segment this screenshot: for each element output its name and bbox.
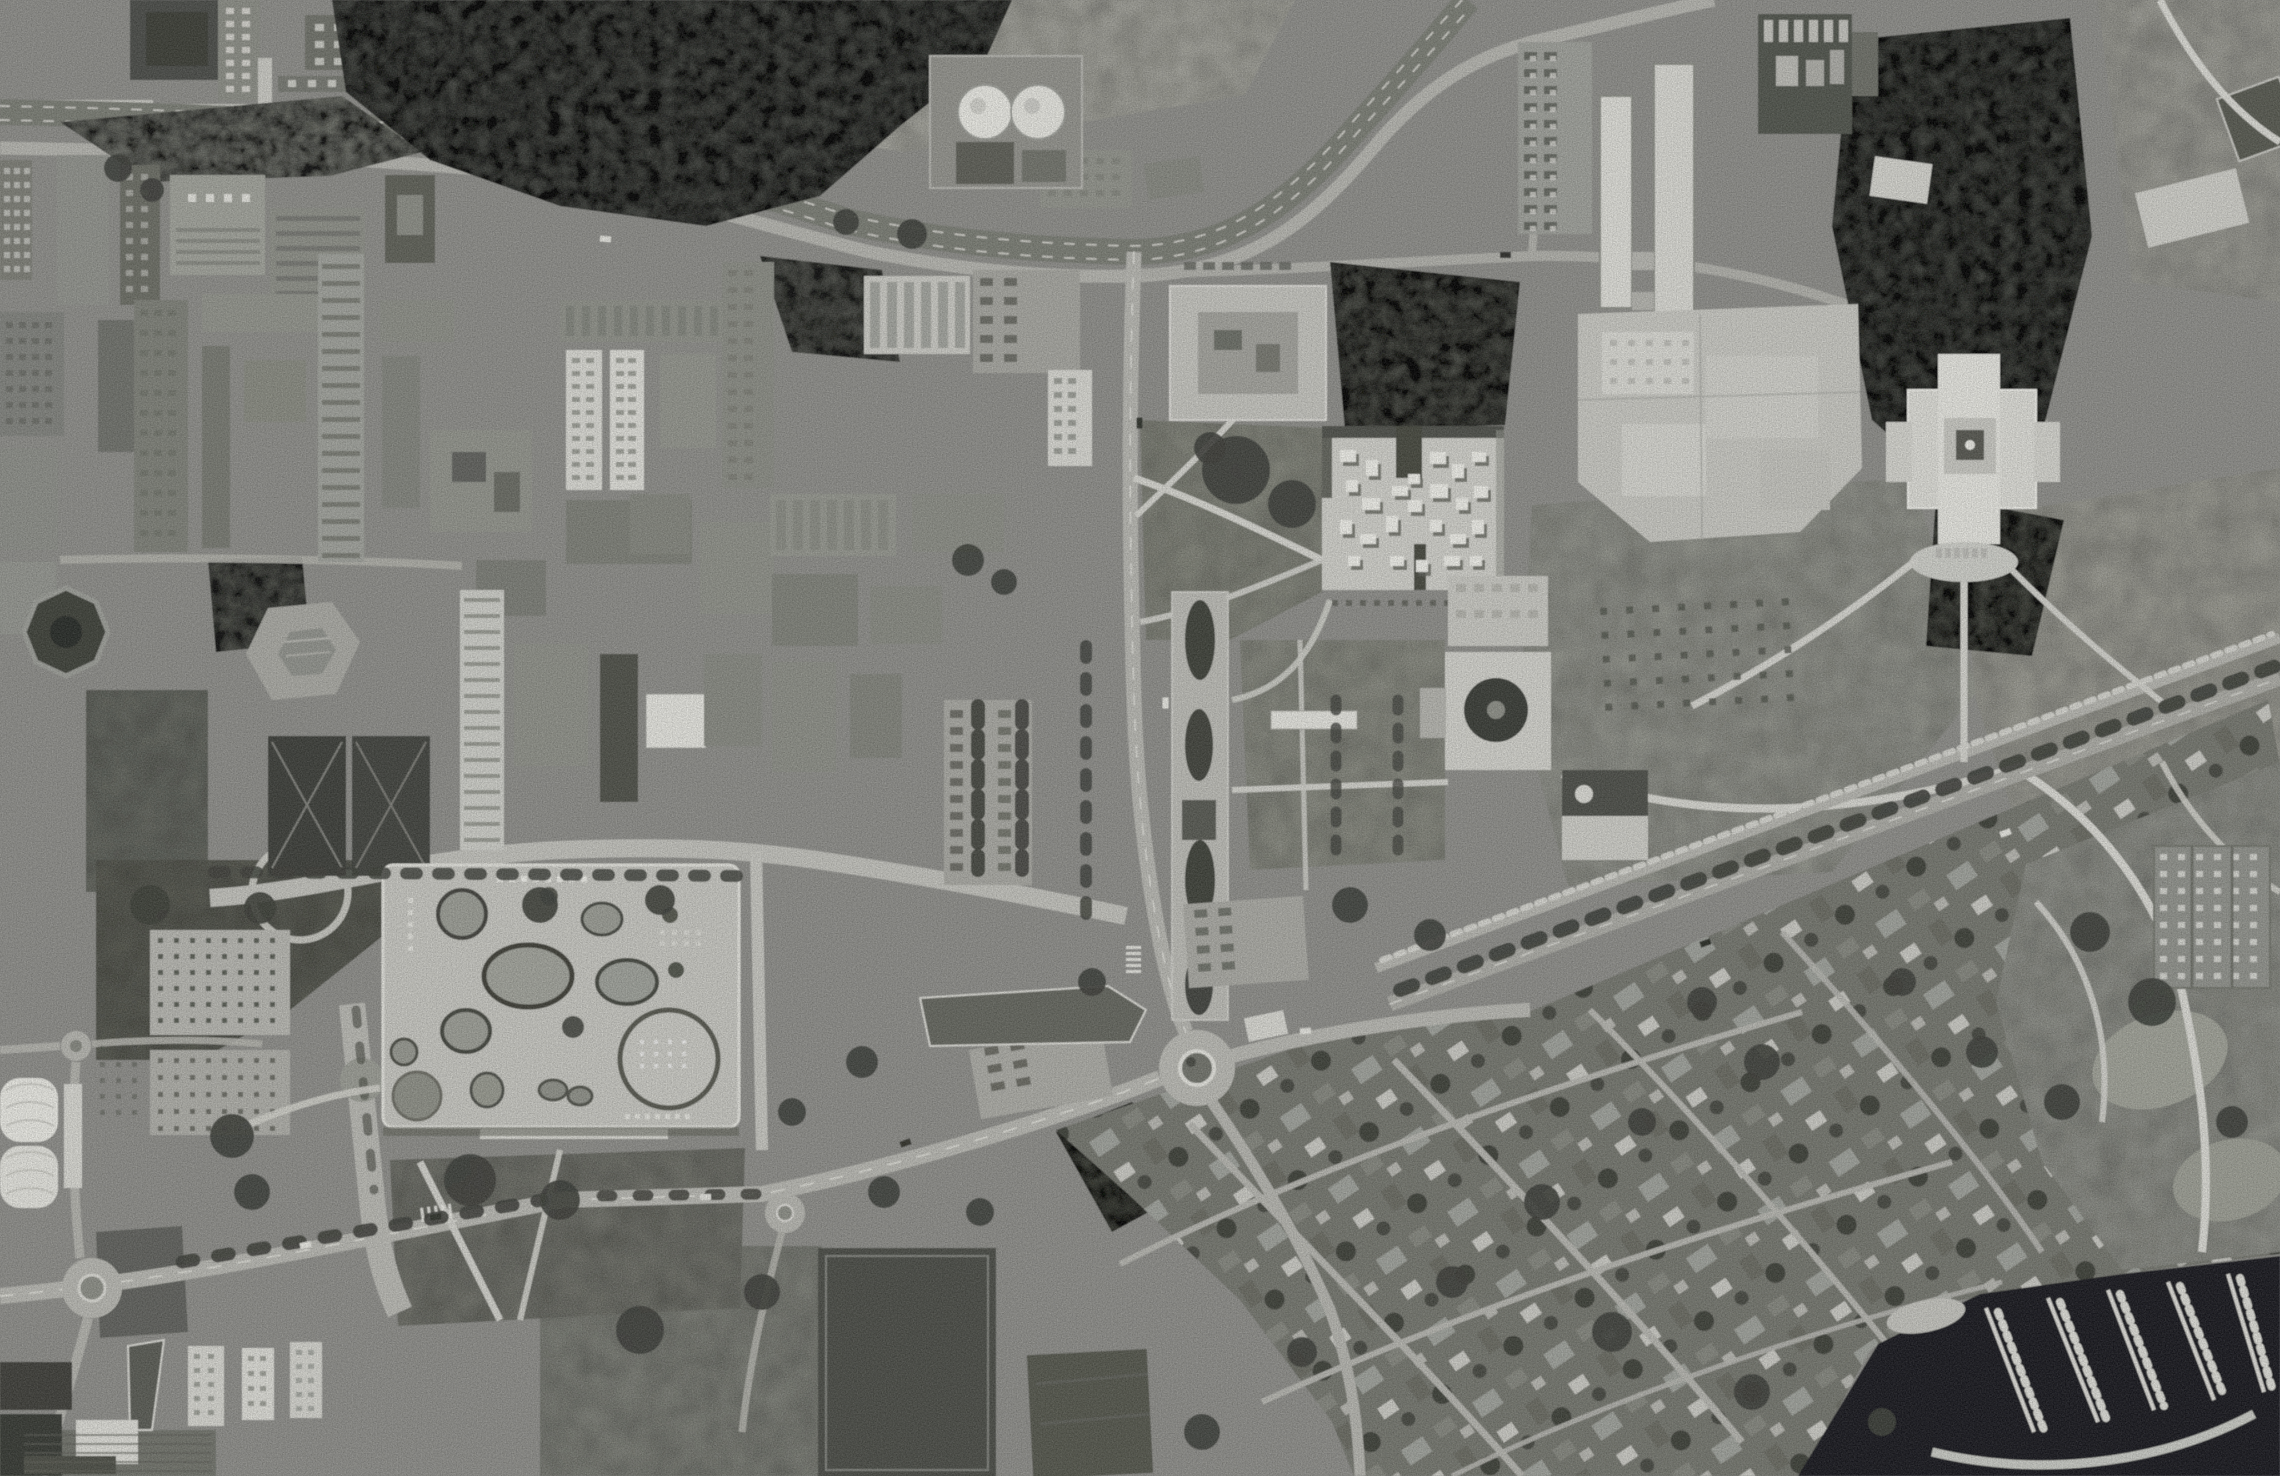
aerial-orthophoto-view (0, 0, 2280, 1476)
aerial-photo-canvas (0, 0, 2280, 1476)
grain-layer (0, 0, 2280, 1476)
film-grain-light (0, 0, 2280, 1476)
